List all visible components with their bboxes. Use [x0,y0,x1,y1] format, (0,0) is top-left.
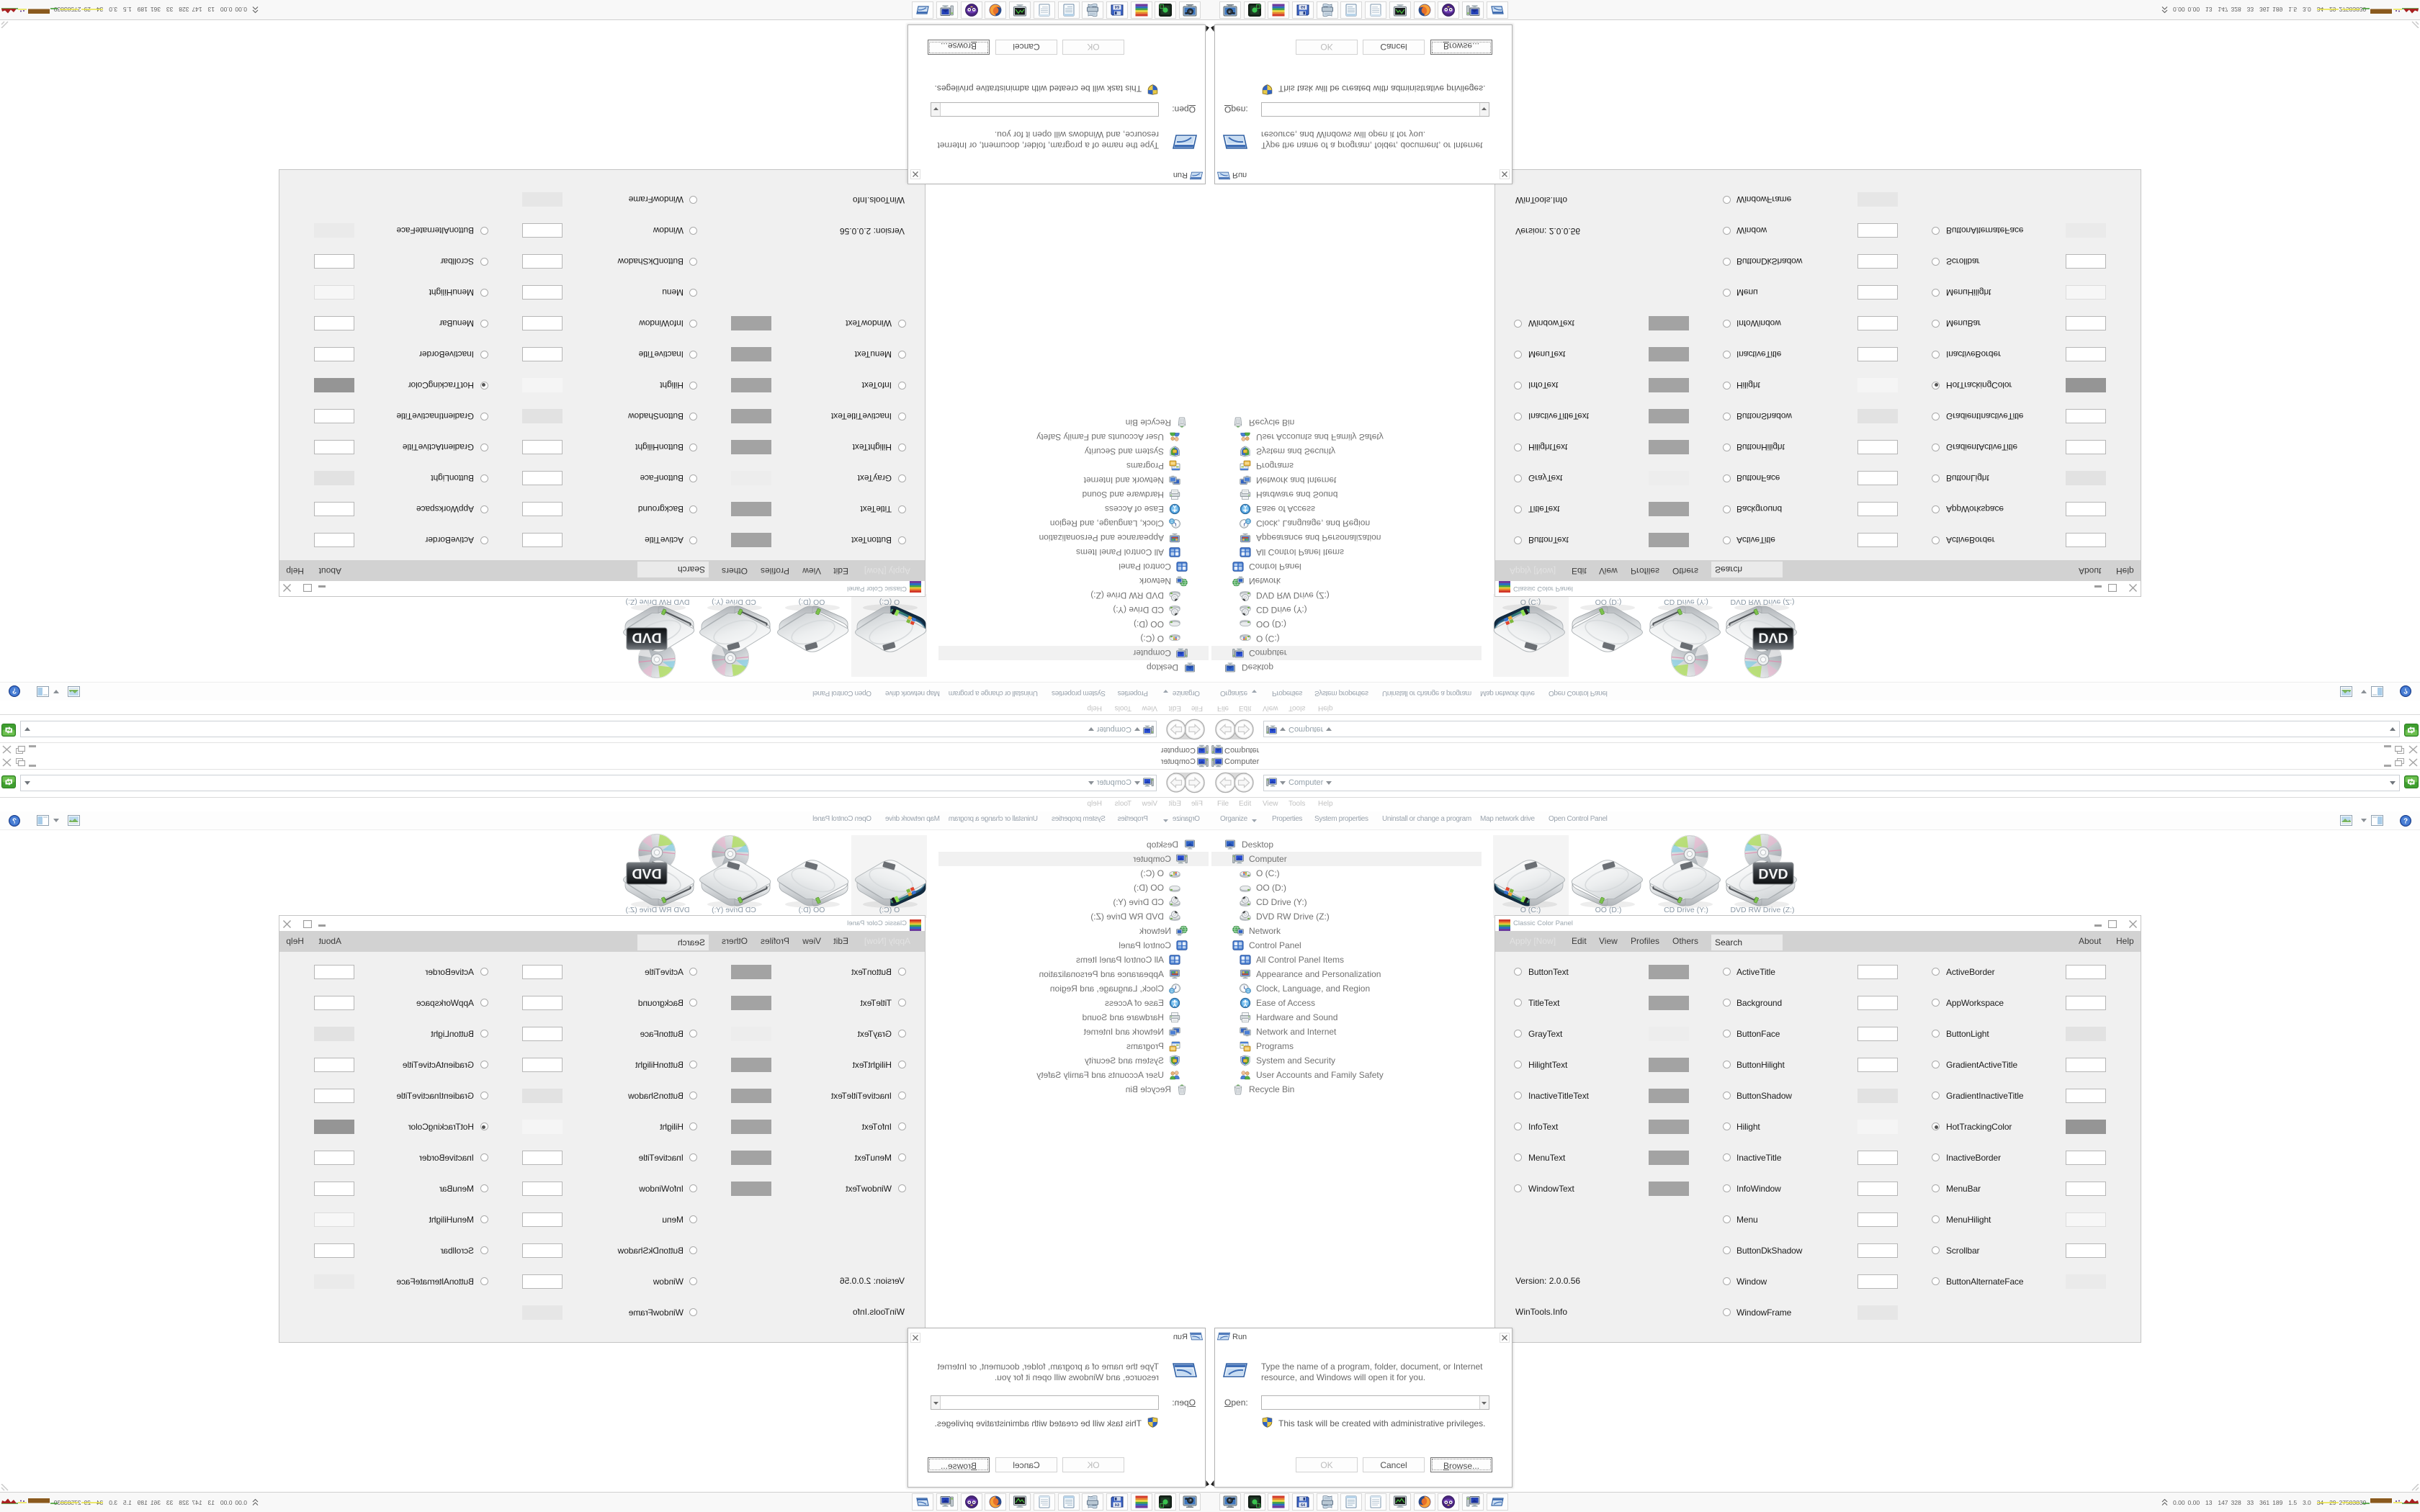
svg-text:?: ? [2403,818,2408,826]
svg-text:64: 64 [1114,1503,1119,1508]
svg-text:64: 64 [1301,4,1306,9]
svg-text:DVD: DVD [1758,867,1788,883]
svg-text:64: 64 [1301,1503,1306,1508]
svg-text:?: ? [12,818,17,826]
svg-text:?: ? [2403,686,2408,694]
svg-text:64: 64 [1114,4,1119,9]
svg-text:DVD: DVD [632,630,661,646]
svg-text:DVD: DVD [1758,630,1788,646]
svg-text:DVD: DVD [632,867,661,883]
svg-text:?: ? [12,686,17,694]
